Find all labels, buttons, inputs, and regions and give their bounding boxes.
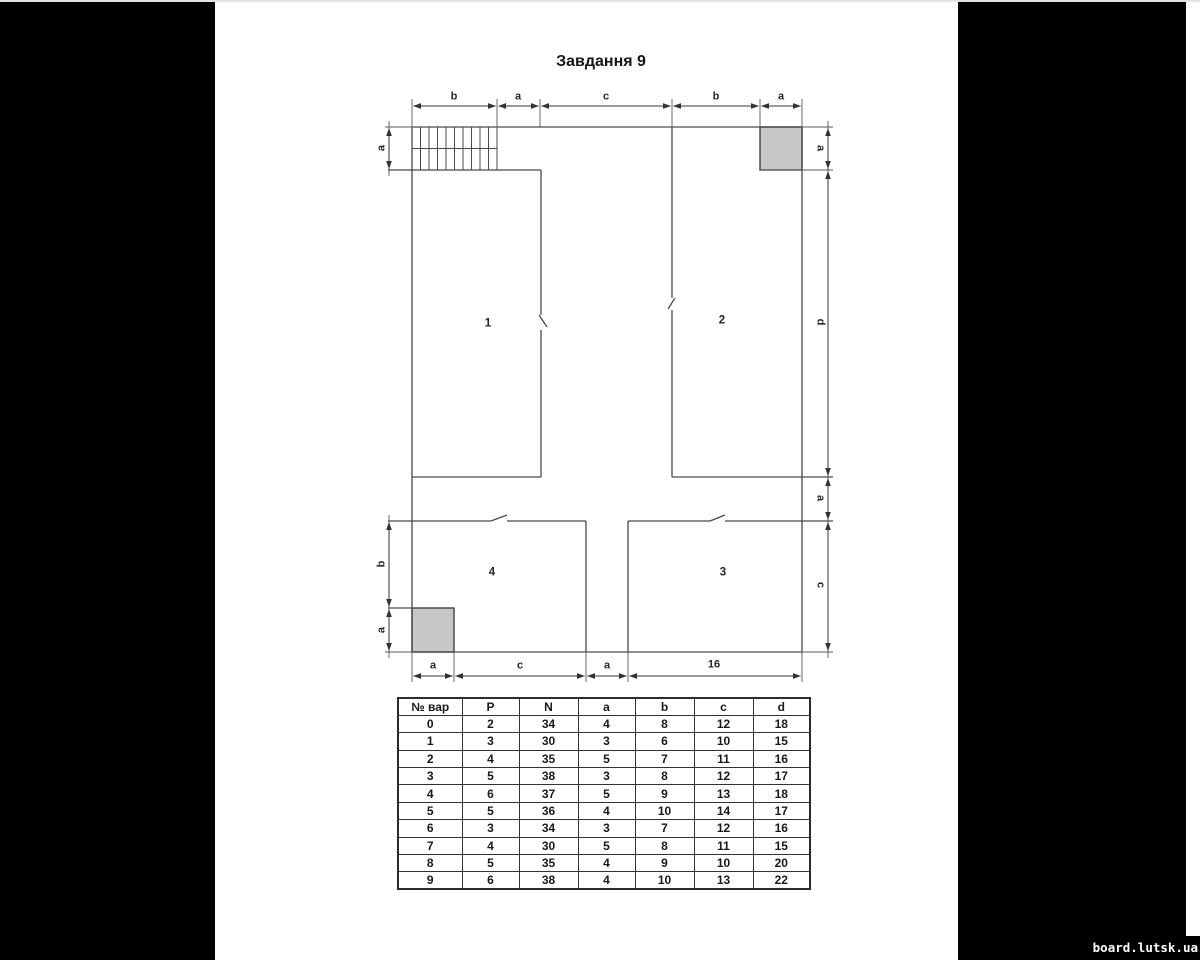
table-cell: 10 [694, 855, 753, 872]
table-cell: 17 [753, 768, 810, 785]
dimension-lines [389, 106, 828, 676]
table-cell: 14 [694, 802, 753, 819]
dim-label-top-a1: a [515, 92, 521, 103]
table-cell: 4 [578, 715, 635, 732]
room-label-2: 2 [719, 315, 725, 327]
dim-label-left-a-bottom: a [377, 627, 388, 633]
table-header-cell: № вар [398, 698, 462, 715]
task-title: Завдання 9 [556, 53, 646, 71]
table-cell: 11 [694, 837, 753, 854]
table-cell: 5 [578, 785, 635, 802]
image-viewer-page: Завдання 9 [0, 0, 1200, 960]
table-cell: 2 [398, 750, 462, 767]
room-label-4: 4 [489, 567, 495, 579]
dim-label-top-b1: b [451, 92, 458, 103]
table-cell: 3 [578, 733, 635, 750]
dim-label-left-a-top: a [377, 145, 388, 151]
table-cell: 0 [398, 715, 462, 732]
table-cell: 6 [462, 872, 519, 889]
floor-plan-drawing [370, 85, 850, 690]
table-cell: 17 [753, 802, 810, 819]
table-row: 4637591318 [398, 785, 810, 802]
table-cell: 4 [578, 802, 635, 819]
table-cell: 12 [694, 820, 753, 837]
table-cell: 30 [519, 837, 578, 854]
table-cell: 8 [398, 855, 462, 872]
table-header-cell: P [462, 698, 519, 715]
extension-lines [385, 99, 833, 682]
table-cell: 2 [462, 715, 519, 732]
table-cell: 7 [398, 837, 462, 854]
table-cell: 15 [753, 837, 810, 854]
table-cell: 11 [694, 750, 753, 767]
table-header-cell: c [694, 698, 753, 715]
dim-label-right-a-top: a [815, 145, 826, 151]
watermark-text: board.lutsk.ua [1093, 940, 1200, 955]
table-row: 0234481218 [398, 715, 810, 732]
table-cell: 4 [578, 855, 635, 872]
table-cell: 5 [398, 802, 462, 819]
table-cell: 9 [398, 872, 462, 889]
interior-walls [388, 127, 833, 652]
watermark-bar: board.lutsk.ua [1078, 936, 1200, 960]
table-cell: 5 [578, 750, 635, 767]
table-row: 55364101417 [398, 802, 810, 819]
right-edge-strip [1186, 2, 1200, 936]
table-cell: 4 [398, 785, 462, 802]
table-cell: 18 [753, 785, 810, 802]
table-cell: 10 [635, 802, 694, 819]
table-cell: 6 [462, 785, 519, 802]
room-label-1: 1 [485, 318, 491, 330]
dim-label-left-b: b [377, 561, 388, 568]
table-header-row: № варPNabcd [398, 698, 810, 715]
dim-label-right-d: d [815, 319, 826, 326]
table-cell: 13 [694, 785, 753, 802]
table-cell: 7 [635, 820, 694, 837]
table-cell: 30 [519, 733, 578, 750]
dim-label-bottom-a1: a [430, 661, 436, 672]
stairs-icon [412, 127, 497, 170]
dim-label-right-a-mid: a [815, 495, 826, 501]
table-cell: 5 [462, 802, 519, 819]
table-cell: 3 [462, 733, 519, 750]
room-label-3: 3 [720, 567, 726, 579]
variants-table-head: № варPNabcd [398, 698, 810, 715]
table-cell: 6 [398, 820, 462, 837]
dim-label-top-b2: b [713, 92, 720, 103]
table-cell: 9 [635, 785, 694, 802]
table-cell: 3 [578, 768, 635, 785]
table-cell: 22 [753, 872, 810, 889]
table-cell: 16 [753, 750, 810, 767]
table-header-cell: a [578, 698, 635, 715]
table-cell: 16 [753, 820, 810, 837]
variants-table: № варPNabcd 0234481218133036101524355711… [397, 697, 811, 890]
table-cell: 1 [398, 733, 462, 750]
table-cell: 12 [694, 768, 753, 785]
table-cell: 10 [694, 733, 753, 750]
variants-table-body: 0234481218133036101524355711163538381217… [398, 715, 810, 889]
table-row: 1330361015 [398, 733, 810, 750]
dim-label-bottom-16: 16 [708, 660, 720, 671]
table-header-cell: d [753, 698, 810, 715]
table-cell: 4 [578, 872, 635, 889]
table-cell: 3 [398, 768, 462, 785]
table-header-cell: b [635, 698, 694, 715]
table-cell: 4 [462, 837, 519, 854]
table-row: 8535491020 [398, 855, 810, 872]
table-cell: 5 [462, 768, 519, 785]
dim-label-bottom-c: c [517, 661, 523, 672]
dim-label-right-c: c [815, 582, 826, 588]
grey-block-bottom-left [412, 608, 454, 652]
table-cell: 38 [519, 768, 578, 785]
dim-label-top-a2: a [778, 92, 784, 103]
table-cell: 4 [462, 750, 519, 767]
table-cell: 10 [635, 872, 694, 889]
table-cell: 34 [519, 820, 578, 837]
table-cell: 18 [753, 715, 810, 732]
table-cell: 35 [519, 750, 578, 767]
table-header-cell: N [519, 698, 578, 715]
table-cell: 38 [519, 872, 578, 889]
table-row: 2435571116 [398, 750, 810, 767]
table-row: 7430581115 [398, 837, 810, 854]
table-cell: 12 [694, 715, 753, 732]
table-cell: 3 [578, 820, 635, 837]
table-row: 6334371216 [398, 820, 810, 837]
table-cell: 13 [694, 872, 753, 889]
table-cell: 20 [753, 855, 810, 872]
dim-label-top-c: c [603, 92, 609, 103]
table-row: 3538381217 [398, 768, 810, 785]
dim-label-bottom-a2: a [604, 661, 610, 672]
table-cell: 15 [753, 733, 810, 750]
table-cell: 8 [635, 715, 694, 732]
table-cell: 3 [462, 820, 519, 837]
table-cell: 9 [635, 855, 694, 872]
table-cell: 36 [519, 802, 578, 819]
table-row: 96384101322 [398, 872, 810, 889]
table-cell: 7 [635, 750, 694, 767]
table-cell: 8 [635, 837, 694, 854]
table-cell: 5 [462, 855, 519, 872]
grey-block-top-right [760, 127, 802, 170]
table-cell: 35 [519, 855, 578, 872]
table-cell: 37 [519, 785, 578, 802]
table-cell: 5 [578, 837, 635, 854]
building-outline [412, 127, 802, 652]
table-cell: 6 [635, 733, 694, 750]
table-cell: 34 [519, 715, 578, 732]
table-cell: 8 [635, 768, 694, 785]
